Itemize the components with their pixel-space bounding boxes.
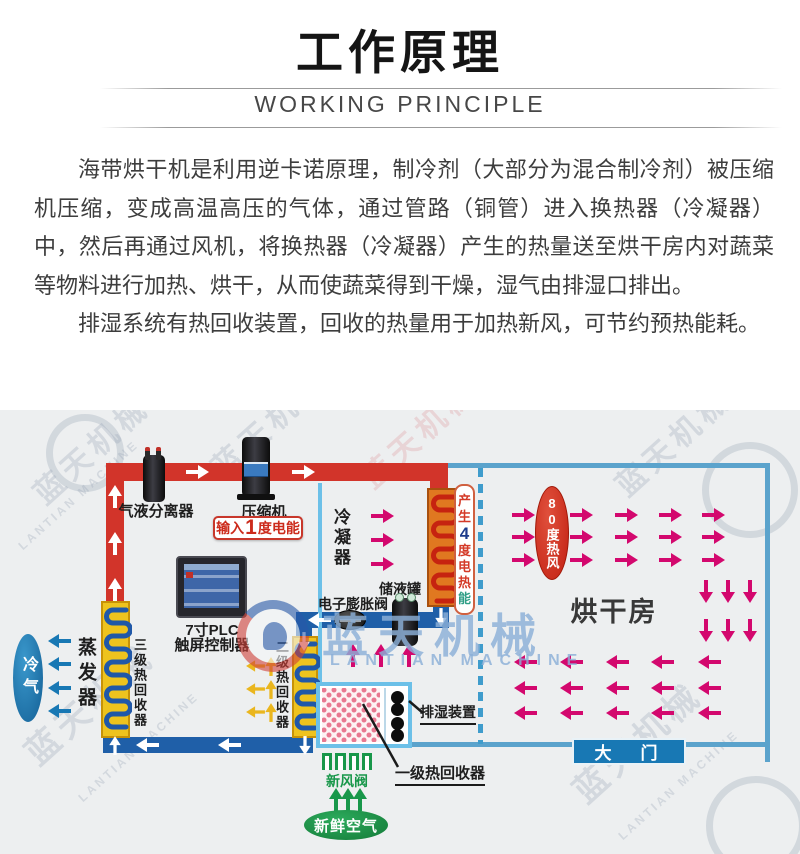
fresh-air-ellipse: 新鲜空气 [304,810,388,840]
valve-slot-icon [335,753,345,770]
first-recovery-label: 一级热回收器 [395,762,485,786]
divider-bottom [100,127,782,128]
paragraph-2: 排湿系统有热回收装置，回收的热量用于加热新风，可节约预热能耗。 [34,305,774,344]
valve-slot-icon [322,753,332,770]
fresh-air-valve [322,753,372,770]
dehumidifier-label: 排湿装置 [420,702,476,725]
page-title: 工作原理 [0,14,800,83]
description-text: 海带烘干机是利用逆卡诺原理，制冷剂（大部分为混合制冷剂）被压缩机压缩，变成高温高… [34,151,774,344]
working-principle-diagram: 蓝天机械 LANTIAN MACHINE 蓝天机械 蓝天机械 蓝天机械 蓝天机械… [0,410,800,854]
paragraph-1: 海带烘干机是利用逆卡诺原理，制冷剂（大部分为混合制冷剂）被压缩机压缩，变成高温高… [34,151,774,305]
valve-slot-icon [362,753,372,770]
fresh-air-arrow-icon [353,788,367,811]
watermark-en: LANTIAN MACHINE [330,652,584,670]
watermark-logo [237,600,309,672]
valve-slot-icon [349,753,359,770]
page-subtitle: WORKING PRINCIPLE [0,91,800,118]
divider-top [100,88,782,89]
